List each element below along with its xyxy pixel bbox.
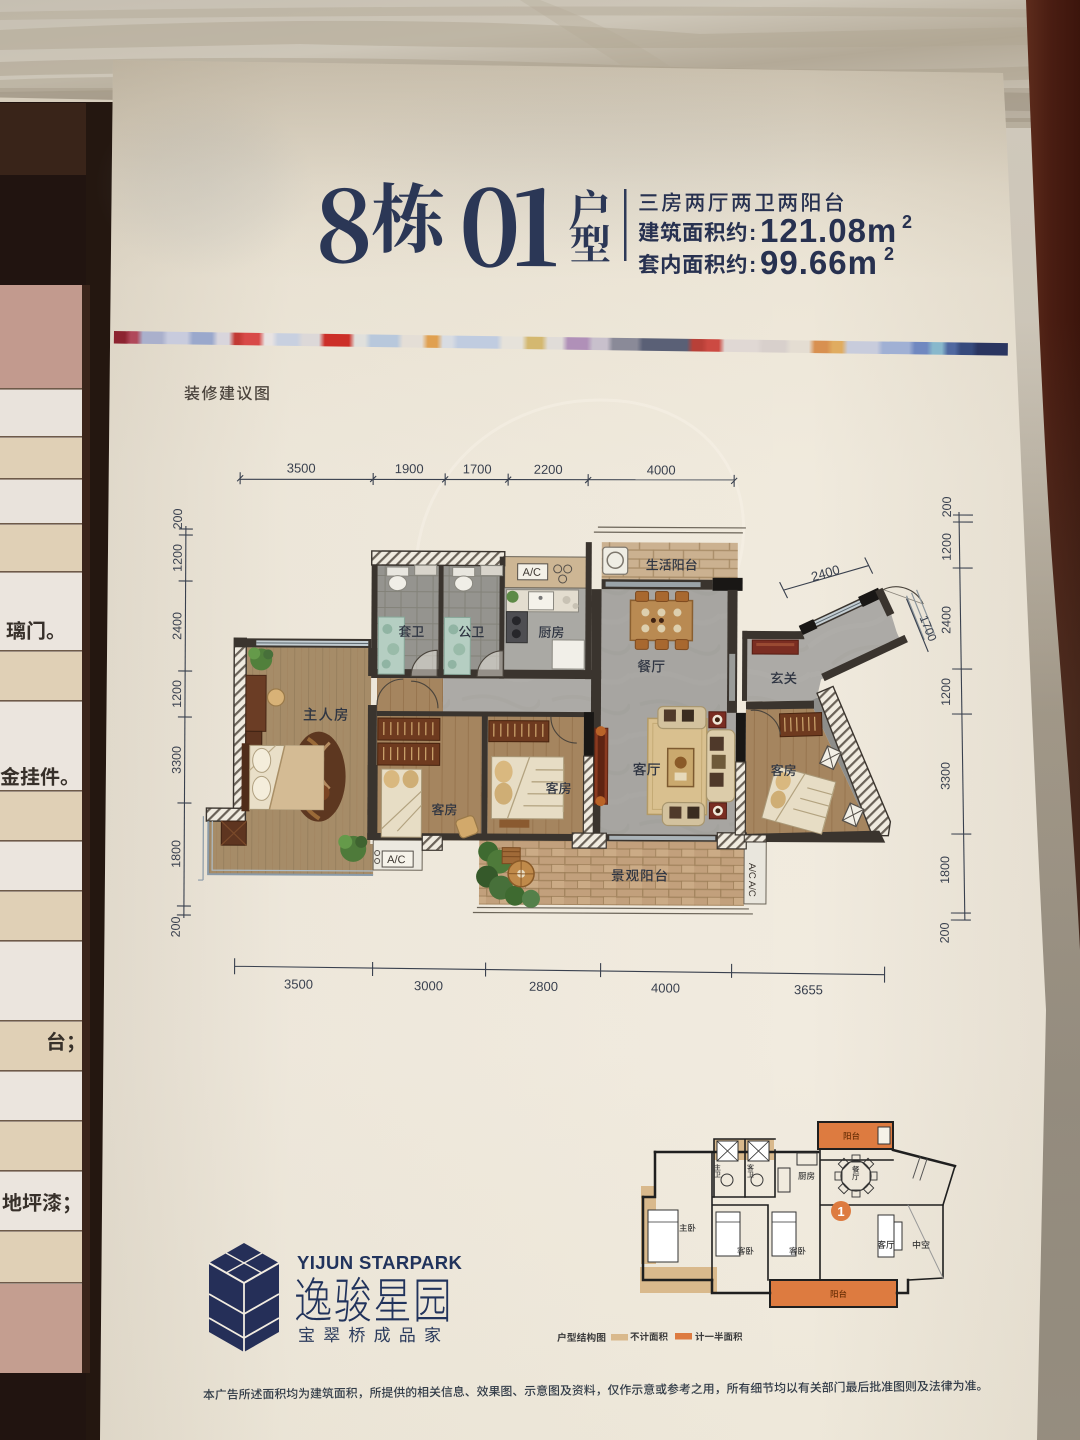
svg-text:1200: 1200 [939,678,953,706]
svg-text:200: 200 [171,508,185,529]
svg-text:3655: 3655 [794,982,823,997]
svg-text:200: 200 [169,916,183,937]
svg-text:A/C: A/C [387,854,405,866]
svg-text:3000: 3000 [414,978,443,993]
svg-text:4000: 4000 [651,980,680,995]
svg-text::: : [749,220,756,245]
svg-text:1700: 1700 [463,461,492,476]
svg-text:3500: 3500 [287,461,316,476]
svg-text:2: 2 [884,244,894,264]
svg-text:2400: 2400 [170,612,184,640]
svg-text:1200: 1200 [171,544,185,572]
svg-text:200: 200 [940,496,954,517]
svg-text::: : [749,252,756,277]
svg-text:1900: 1900 [395,461,424,476]
svg-text:3300: 3300 [170,746,184,774]
svg-text:1200: 1200 [940,533,954,561]
svg-text:YIJUN STARPARK: YIJUN STARPARK [297,1252,463,1273]
svg-text:A/C A/C: A/C A/C [746,863,757,897]
svg-text:1800: 1800 [938,856,952,884]
svg-text:99.66m: 99.66m [760,244,878,281]
svg-text:1200: 1200 [170,680,184,708]
svg-text:200: 200 [938,922,952,943]
svg-text:2400: 2400 [939,606,953,634]
svg-text:A/C: A/C [523,567,541,579]
svg-text:2: 2 [902,212,912,232]
svg-text:4000: 4000 [647,462,676,477]
svg-text:3500: 3500 [284,977,313,992]
svg-text:1: 1 [837,1204,844,1219]
svg-text:1800: 1800 [169,840,183,868]
svg-text:3300: 3300 [939,762,953,790]
svg-text:2800: 2800 [529,979,558,994]
svg-text:2200: 2200 [534,462,563,477]
